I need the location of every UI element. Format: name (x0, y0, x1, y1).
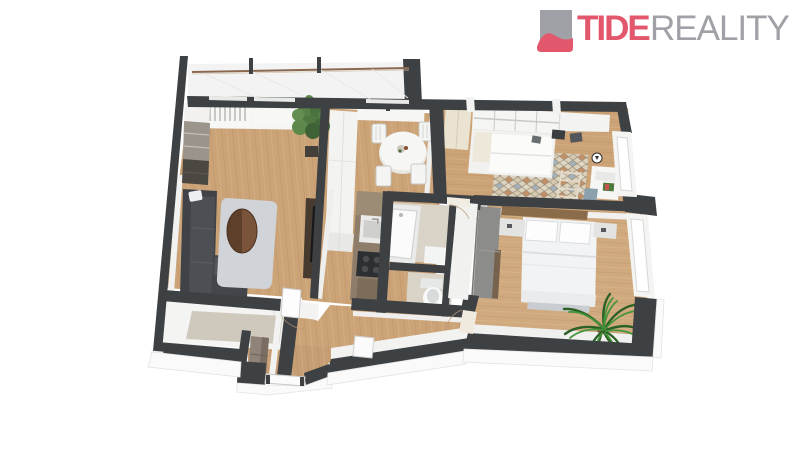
svg-text:REALITY: REALITY (650, 9, 790, 48)
svg-text:TIDE: TIDE (577, 9, 649, 48)
